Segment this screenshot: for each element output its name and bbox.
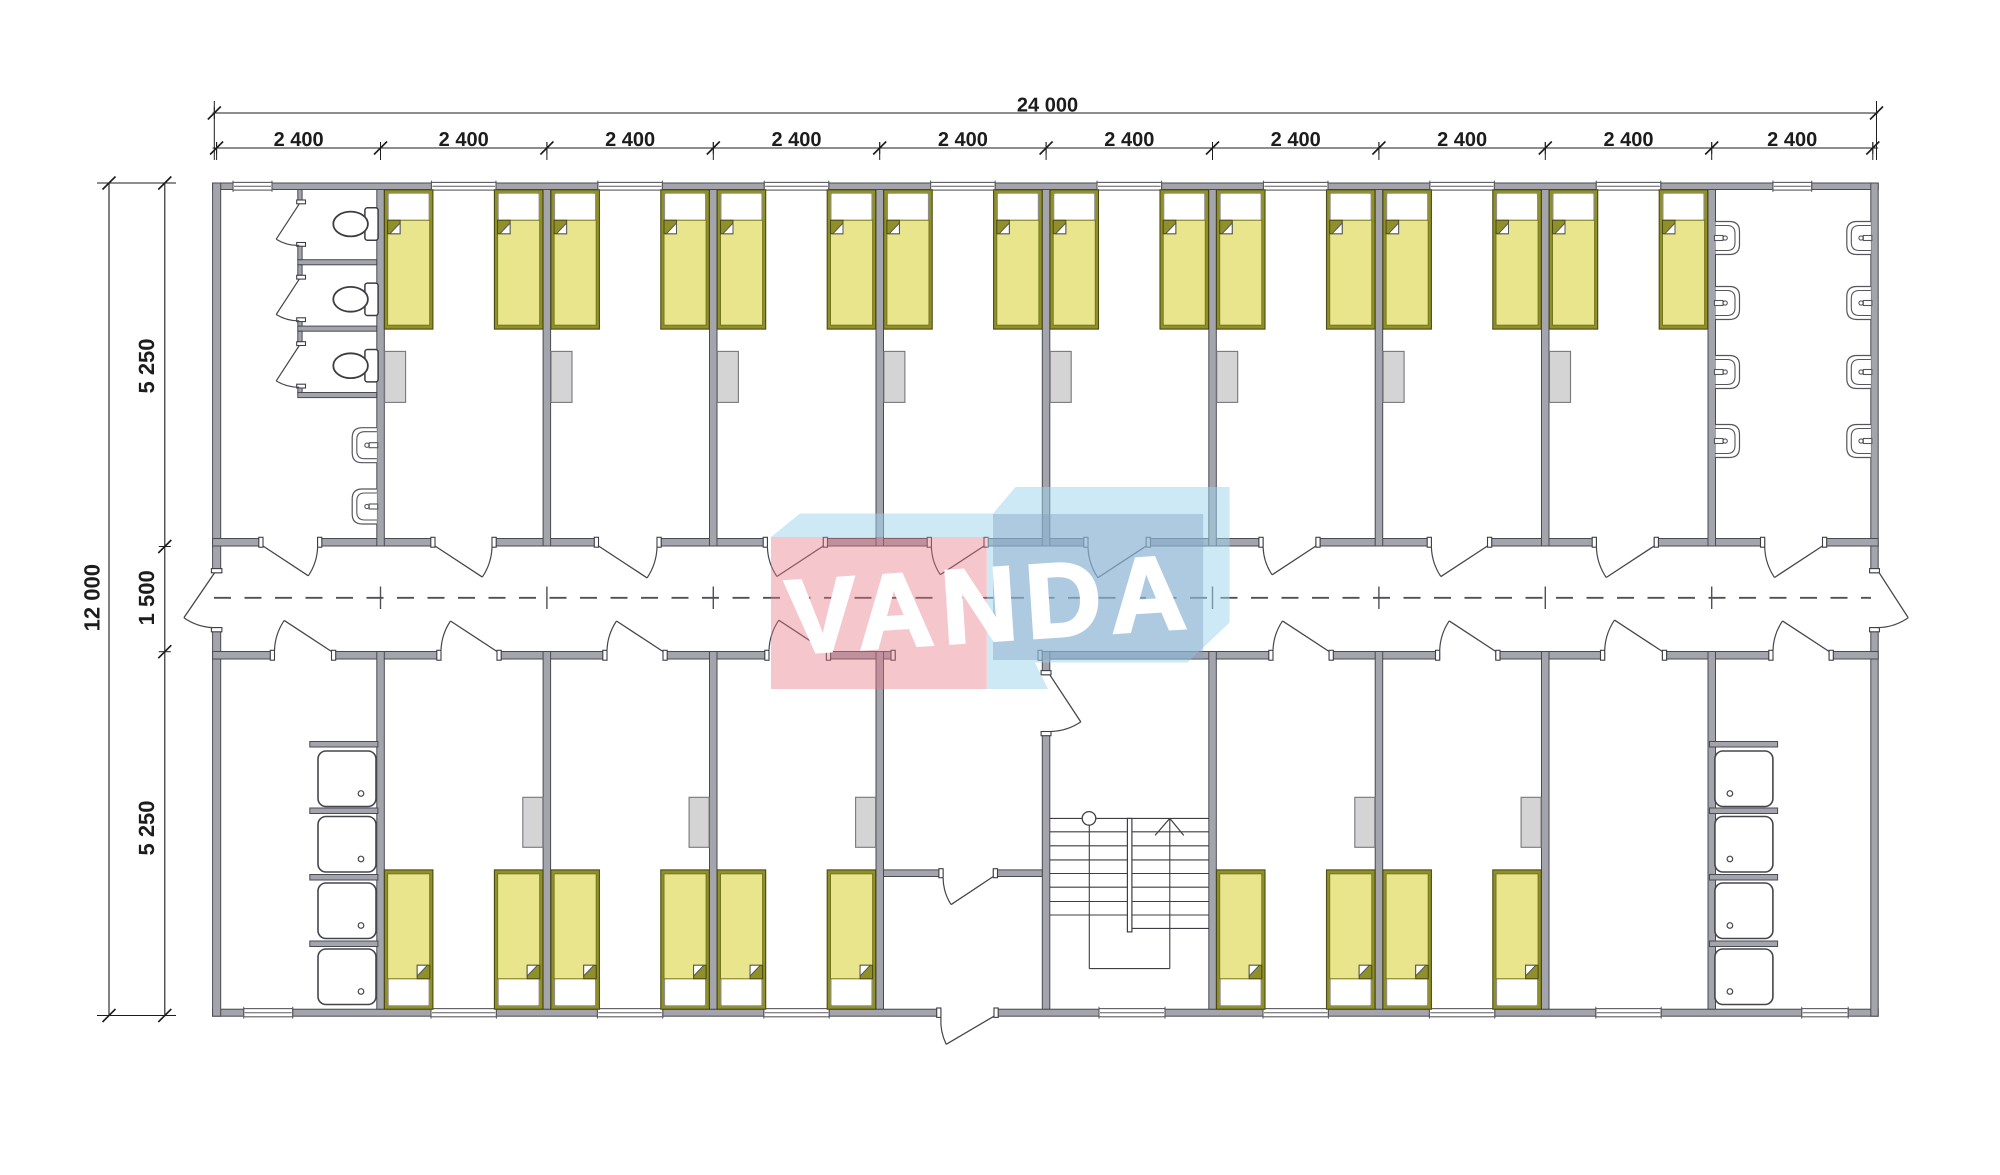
svg-text:12 000: 12 000 xyxy=(80,564,105,631)
svg-text:2 400: 2 400 xyxy=(1603,129,1653,151)
svg-text:2 400: 2 400 xyxy=(1104,129,1154,151)
svg-text:2 400: 2 400 xyxy=(439,129,489,151)
svg-text:2 400: 2 400 xyxy=(1437,129,1487,151)
svg-text:2 400: 2 400 xyxy=(938,129,988,151)
svg-text:2 400: 2 400 xyxy=(1271,129,1321,151)
svg-text:24 000: 24 000 xyxy=(1017,95,1078,117)
svg-text:2 400: 2 400 xyxy=(1767,129,1817,151)
svg-text:5 250: 5 250 xyxy=(134,800,159,855)
svg-text:2 400: 2 400 xyxy=(771,129,821,151)
svg-text:2 400: 2 400 xyxy=(274,129,324,151)
svg-text:1 500: 1 500 xyxy=(134,570,159,625)
svg-text:5 250: 5 250 xyxy=(134,338,159,393)
svg-text:2 400: 2 400 xyxy=(605,129,655,151)
